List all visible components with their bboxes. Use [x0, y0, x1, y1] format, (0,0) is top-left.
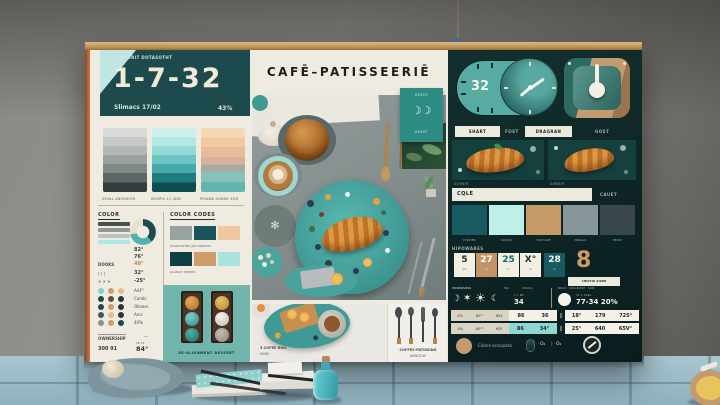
cell: 36	[542, 313, 549, 319]
cell: 0%	[457, 314, 463, 318]
right-dark-panel: 32 SHART	[448, 50, 642, 362]
gold-spoon-bowl	[381, 167, 390, 181]
palette-swatch	[452, 205, 487, 235]
cell: 18°	[572, 313, 581, 319]
tile-sub: w	[520, 268, 541, 271]
table-cells-left: 0% 80¹¹ 604	[451, 310, 509, 321]
moon-icon: ☽	[452, 294, 460, 304]
board-frame-top	[85, 42, 642, 50]
label-box: SHART	[455, 126, 500, 137]
star-icon: ✶	[463, 293, 471, 304]
table-cells-right: 18° 179 725°	[565, 310, 639, 321]
croissant-photo	[548, 140, 636, 180]
weather-small: 1 1 BX	[514, 293, 524, 297]
dessert-tray	[211, 291, 233, 343]
weather-right-labels: BOLD · DIAGNOSE · SUN	[558, 286, 594, 290]
gradient-swatch-gray	[103, 128, 147, 192]
stat-bar	[98, 240, 130, 244]
label-box: DRAGRAN	[525, 126, 572, 137]
number-tile: 28m	[544, 253, 565, 277]
label-dark: FOST	[505, 129, 519, 134]
cell: 80¹¹	[476, 327, 483, 331]
cafe-bar: CQLE	[452, 188, 592, 201]
tiles-label: HIPOWARES	[452, 246, 484, 251]
table-cells-mid-highlight: 86 34°	[509, 323, 557, 334]
divider	[98, 205, 244, 206]
color-value: 76°	[134, 254, 143, 260]
sun-icon: ☀	[475, 291, 486, 305]
ownership-label: OWNERSHIP	[98, 334, 126, 341]
gradient-caption: PIOKNE AOKNE 3QN	[200, 197, 246, 201]
stat-row-value: 48°	[134, 261, 143, 267]
label-dark: GOST	[595, 129, 609, 134]
swatch-caption: SMALLS	[563, 238, 598, 242]
table-separator: ||	[557, 323, 565, 334]
small-cup	[252, 302, 270, 318]
big-number-caption: CHISTOI SIGER	[568, 277, 620, 286]
moon-tile-bottom-label: GGHIT	[400, 130, 443, 134]
code-swatch	[194, 252, 216, 266]
cell: 86	[518, 313, 525, 319]
palette-swatch	[600, 205, 635, 235]
toast-plate	[285, 265, 357, 297]
footer-text: Colore ecosipatis	[478, 343, 512, 348]
stat-row-label: DOOKS	[98, 262, 114, 267]
cell: 60F	[496, 327, 502, 331]
dessert-photo-panel: RE-ALIGNMENT DESSERT	[163, 285, 250, 362]
divider	[551, 288, 552, 308]
clock-value: 32	[471, 79, 489, 94]
weather-label: PROWARSS	[452, 286, 471, 290]
dial-gauge	[564, 58, 630, 118]
ownership-deg: 84°	[136, 345, 148, 353]
tile-sub: tt	[498, 268, 519, 271]
photo-caption: AMBER	[550, 182, 564, 186]
cell: 725°	[619, 313, 632, 319]
palette-swatch	[563, 205, 598, 235]
teapot-lid	[270, 121, 276, 127]
cell: 34°	[540, 326, 549, 332]
legend-line: 40%	[134, 320, 143, 325]
legend-line: Obsess	[134, 304, 148, 309]
table-cells-right: 25° 640 65V°	[565, 323, 639, 334]
divider	[163, 212, 164, 285]
clock-face	[500, 58, 558, 116]
tan-dot	[456, 338, 472, 354]
header-sub-left: Slimacs 17/02	[114, 104, 161, 111]
number-tile: 27m	[476, 253, 497, 277]
color-value: 82°	[134, 247, 143, 253]
table-cells-left: 0% 80¹¹ 60F	[451, 323, 509, 334]
code-swatch	[170, 252, 192, 266]
teal-dish	[252, 95, 268, 111]
number-tile: 25tt	[498, 253, 519, 277]
palette-swatch	[526, 205, 561, 235]
table-row: 0% 80¹¹ 60F 86 34° || 25° 640 65V°	[451, 323, 639, 334]
cell: 25°	[572, 326, 581, 332]
code-swatch	[218, 252, 240, 266]
tile-value: 28	[544, 253, 565, 268]
legend-line: Arcs	[134, 312, 143, 317]
cell: 80¹¹	[476, 314, 483, 318]
strip-caption-right-1: COFFES-PATISSING	[390, 348, 446, 352]
dot-legend	[98, 288, 158, 328]
weather-inc-label: INC	[504, 286, 509, 290]
croissant	[562, 145, 615, 175]
succulent-pot	[426, 189, 436, 197]
stat-row-label: ⟨ ⟩ ⟩	[98, 271, 105, 276]
cutlery-gold-tip	[419, 287, 425, 298]
board-surface: SACCURIT DOTASOTHT 1-7-32 Slimacs 17/02 …	[90, 50, 642, 362]
legend-line: AAF°	[134, 288, 144, 293]
succulent	[420, 175, 438, 189]
tile-sub: m	[544, 268, 565, 271]
big-number: 8	[576, 248, 591, 273]
capsule-icon	[526, 339, 535, 352]
cafe-bar-right-label: CAUET	[600, 192, 617, 197]
weather-visual-label: VISUAL	[522, 286, 533, 290]
cell: 86	[517, 326, 524, 332]
pastry	[102, 360, 124, 378]
bottom-strip: 3 COFEE ROIL WINE COFFES-PATISSING WINDO…	[252, 302, 446, 362]
codes-caption: HANDCRTTED JAR ORNISHS	[170, 244, 211, 248]
table-row: 0% 80¹¹ 604 86 36 || 18° 179 725°	[451, 310, 639, 321]
moon-icon: ☽☽	[400, 104, 443, 117]
latte-art	[263, 161, 293, 191]
cell: 640	[595, 326, 605, 332]
number-tile: 5am	[454, 253, 475, 277]
knife	[419, 238, 435, 293]
full-moon-icon	[558, 293, 571, 306]
weather-value: 34	[514, 298, 524, 306]
table-cells-mid: 86 36	[509, 310, 557, 321]
stat-bar	[98, 228, 130, 232]
board-title: CAFĒ–PATISSEERIĒ	[252, 65, 446, 79]
legend-line: Camb:	[134, 296, 147, 301]
gold-spoon-handle	[383, 123, 389, 171]
tile-value: 25	[498, 253, 519, 268]
color-codes-label: COLOR CODES	[170, 212, 215, 220]
croissant-photo	[452, 140, 544, 180]
codes-caption: ACANIAT PIRRTIR	[170, 270, 195, 274]
weather-right-small: 11 1 1990	[576, 293, 591, 297]
garnish-plate: ✻	[254, 205, 296, 247]
swatch-caption: DIVIDER	[452, 238, 487, 242]
stat-row-label: ✕ ✕ ✕	[98, 279, 111, 284]
o2-label: O₂	[540, 342, 545, 347]
color-section-label: COLOR	[98, 212, 120, 220]
oval-platter	[262, 302, 352, 352]
cell: 0%	[457, 327, 463, 331]
stat-row-value: 32°	[134, 270, 143, 276]
swatch-caption: ROYCAVE	[526, 238, 561, 242]
code-swatch	[170, 226, 192, 240]
strip-caption-right-2: WINDOW	[390, 354, 446, 358]
dessert-tray	[181, 291, 203, 343]
tile-value: 5	[454, 253, 475, 268]
strip-caption-left-1: 3 COFEE ROIL	[260, 346, 287, 350]
donut-chart	[130, 219, 156, 245]
gradient-swatch-teal	[152, 128, 196, 192]
swatch-caption: GOODS	[489, 238, 524, 242]
croissant	[318, 211, 386, 258]
weather-right-value: 77-34 20%	[576, 298, 618, 306]
moon-icon: ☾	[491, 294, 499, 304]
bread-bun	[285, 119, 329, 161]
cutlery-panel: COFFES-PATISSING WINDOW	[387, 304, 446, 362]
cell: 179	[595, 313, 605, 319]
header-panel: SACCURIT DOTASOTHT 1-7-32 Slimacs 17/02 …	[100, 50, 250, 116]
soup	[696, 376, 720, 400]
header-big-number: 1-7-32	[113, 63, 223, 94]
mood-board: SACCURIT DOTASOTHT 1-7-32 Slimacs 17/02 …	[85, 42, 642, 362]
ownership-dash: —	[144, 334, 148, 339]
tile-sub: am	[454, 268, 475, 271]
ownership-value: 300 91	[98, 346, 117, 352]
header-caption: SACCURIT DOTASOTHT	[114, 55, 172, 60]
code-swatch	[194, 226, 216, 240]
stat-bar	[98, 234, 130, 238]
number-tile: X°w	[520, 253, 541, 277]
moon-tile: GOIST ☽☽ GGHIT	[400, 88, 443, 142]
swatch-caption: HEAVY	[600, 238, 635, 242]
footer-separator: |	[551, 341, 553, 347]
photo-caption: SOMER	[454, 182, 469, 186]
table-separator: ||	[557, 310, 565, 321]
nut-bowl	[252, 247, 282, 277]
tile-value: X°	[520, 253, 541, 268]
gradient-swatch-peach	[201, 128, 245, 192]
tile-sub: m	[476, 268, 497, 271]
stat-row-value: -25°	[134, 278, 146, 284]
stat-bar	[98, 222, 130, 226]
scene: SACCURIT DOTASOTHT 1-7-32 Slimacs 17/02 …	[0, 0, 720, 405]
gradient-caption: AOKPIA 11 JIDN	[151, 197, 197, 201]
dessert-caption: RE-ALIGNMENT DESSERT	[163, 351, 250, 355]
o1-label: O₁	[556, 342, 561, 347]
header-sub-right: 43%	[218, 105, 232, 112]
gradient-caption: AYVAL ANOKXIOR	[102, 197, 148, 201]
glass-bottle	[313, 370, 338, 400]
cell: 604	[496, 314, 503, 318]
compass-icon	[583, 336, 601, 354]
code-swatch	[218, 226, 240, 240]
moon-tile-top-label: GOIST	[400, 93, 443, 97]
cell: 65V°	[619, 326, 632, 332]
croissant	[465, 145, 525, 175]
palette-swatch	[489, 205, 524, 235]
white-card	[268, 361, 303, 375]
tile-value: 27	[476, 253, 497, 268]
strip-caption-left-2: WINE	[260, 352, 269, 356]
